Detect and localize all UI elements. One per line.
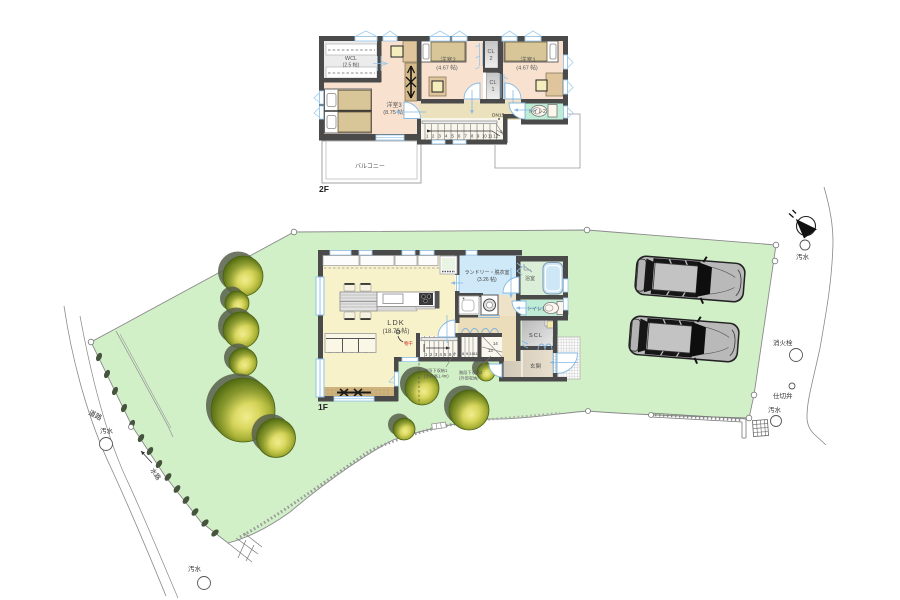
svg-text:汚水: 汚水 xyxy=(796,252,810,261)
svg-text:(2.5 帖): (2.5 帖) xyxy=(343,62,360,69)
svg-text:14: 14 xyxy=(493,341,498,346)
svg-text:(4.67 帖): (4.67 帖) xyxy=(516,64,538,72)
svg-text:(天井高1.4m): (天井高1.4m) xyxy=(424,373,449,380)
svg-text:洋室2: 洋室2 xyxy=(440,56,456,64)
svg-text:汚水: 汚水 xyxy=(100,426,114,435)
svg-text:トイレ1: トイレ1 xyxy=(527,307,545,313)
svg-text:汚水: 汚水 xyxy=(188,564,202,573)
svg-text:2: 2 xyxy=(489,56,492,62)
svg-text:SCL: SCL xyxy=(529,333,543,339)
svg-text:10: 10 xyxy=(482,134,487,139)
svg-text:物干: 物干 xyxy=(404,340,413,347)
svg-text:(外部収納): (外部収納) xyxy=(459,375,479,382)
svg-text:2F: 2F xyxy=(319,184,329,194)
svg-text:(3.26 帖): (3.26 帖) xyxy=(477,276,497,283)
svg-text:DN15: DN15 xyxy=(492,113,505,119)
svg-text:バルコニー: バルコニー xyxy=(355,163,385,170)
svg-text:洋室3: 洋室3 xyxy=(386,101,402,109)
svg-text:玄関: 玄関 xyxy=(530,362,542,370)
svg-text:CL: CL xyxy=(487,49,494,55)
svg-text:洋室1: 洋室1 xyxy=(520,56,536,64)
svg-text:CL: CL xyxy=(489,80,496,86)
svg-text:ランドリー・脱衣室: ランドリー・脱衣室 xyxy=(464,269,509,276)
svg-text:(4.67 帖): (4.67 帖) xyxy=(436,64,458,72)
svg-text:汚水: 汚水 xyxy=(768,405,782,414)
svg-text:1F: 1F xyxy=(318,402,328,412)
svg-text:WCL: WCL xyxy=(345,56,357,62)
svg-text:1: 1 xyxy=(491,87,494,93)
svg-text:消火栓: 消火栓 xyxy=(773,338,793,347)
svg-text:LDK: LDK xyxy=(387,318,405,327)
svg-text:仕切弁: 仕切弁 xyxy=(773,391,793,400)
svg-text:12: 12 xyxy=(494,134,499,139)
svg-text:11: 11 xyxy=(488,134,493,139)
svg-text:浴室: 浴室 xyxy=(525,275,535,282)
svg-text:13: 13 xyxy=(488,348,493,353)
